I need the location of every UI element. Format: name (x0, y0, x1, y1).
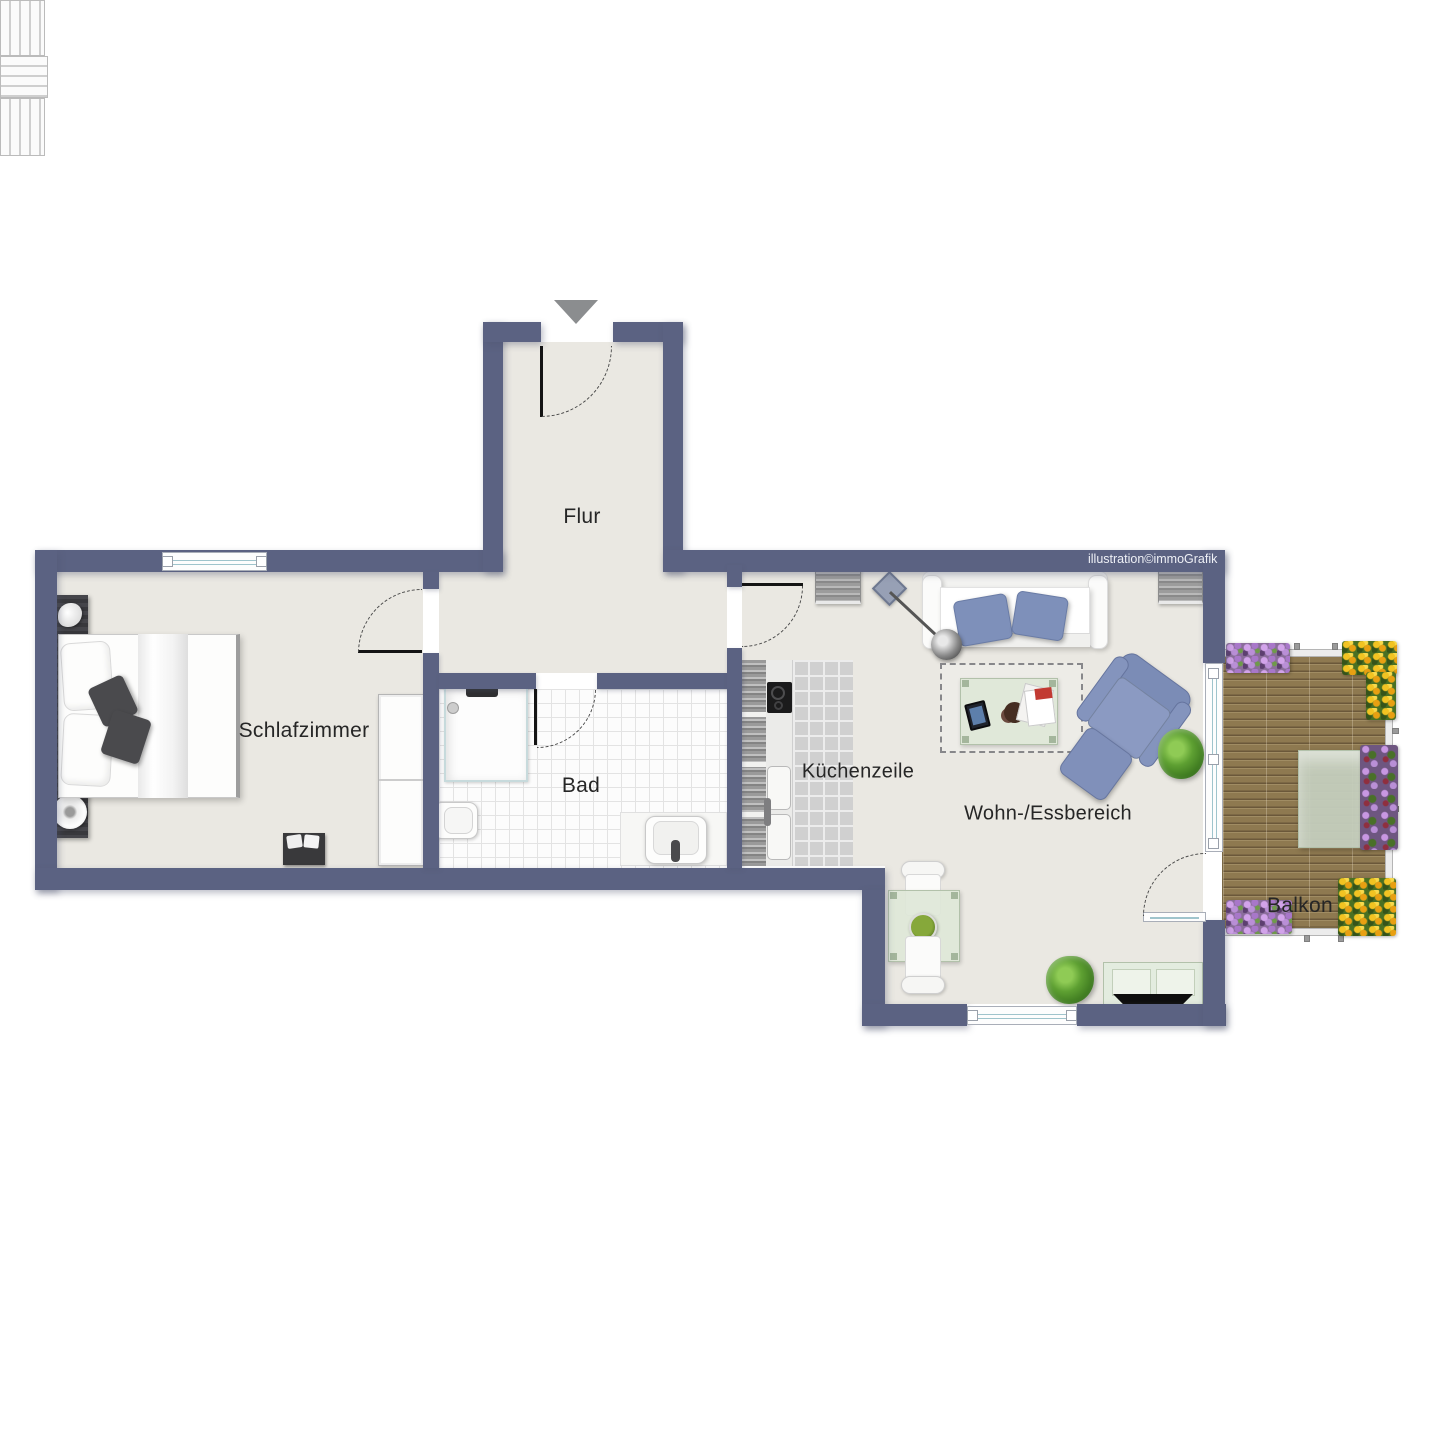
balcony-table (1298, 750, 1368, 848)
window-handle (1208, 838, 1219, 849)
wall-corridor-right (663, 322, 683, 572)
window-glass (977, 1014, 1067, 1019)
flower-box-top-right (1342, 641, 1397, 675)
bed-duvet-fold (138, 634, 188, 798)
flower-box-top-left (1226, 643, 1290, 673)
window-glass (1150, 917, 1199, 919)
window-handle (162, 556, 173, 567)
wall-top-left (35, 550, 503, 572)
flower-box-top-right-side (1366, 672, 1396, 720)
wall-hall-kitchen (727, 648, 742, 868)
sofa-cushion-blue (1011, 590, 1069, 642)
floor-lamp-base (931, 629, 962, 660)
kitchen-faucet-icon (764, 798, 771, 826)
wall-hall-kitchen-stub (727, 565, 742, 587)
window-glass (172, 560, 257, 565)
dining-chair-bottom (901, 976, 945, 994)
balcony-chair-top (0, 0, 45, 56)
hallway-lower-floor (439, 572, 727, 673)
dining-table-corner (890, 953, 897, 960)
watermark-text: illustration©immoGrafik (1088, 552, 1200, 566)
wall-bedroom-bath (423, 653, 439, 868)
wall-left (35, 550, 57, 890)
balcony-post (1304, 935, 1310, 942)
kitchen-cabinet-gap (742, 812, 766, 817)
balcony-post (1392, 728, 1399, 734)
flower-box-right (1360, 745, 1398, 850)
bedroom-window (162, 552, 267, 571)
toilet-seat (444, 807, 473, 834)
dining-table-corner (951, 953, 958, 960)
dining-window (967, 1006, 1077, 1025)
flower-box-bottom-right (1338, 878, 1396, 936)
room-label-flur: Flur (563, 505, 600, 529)
shower-drain-icon (447, 702, 459, 714)
lowboard-drawer (1112, 969, 1151, 996)
dining-table-corner (951, 892, 958, 899)
wall-bath-top-left (439, 673, 536, 689)
potted-plant-icon (1158, 729, 1204, 779)
magazine-cover-accent (1034, 687, 1052, 700)
washbasin-faucet-icon (671, 840, 680, 862)
wall-corridor-left (483, 322, 503, 572)
wall-bath-top-right (597, 673, 742, 689)
floor-plan-canvas: Flur Schlafzimmer Bad Küchenzeile Wohn-/… (0, 0, 1440, 1440)
room-label-bad: Bad (562, 774, 600, 798)
window-handle (1066, 1010, 1077, 1021)
wall-corridor-top-left (483, 322, 541, 342)
balcony-chair-left (0, 56, 48, 98)
room-label-kuechenzeile: Küchenzeile (802, 761, 914, 784)
dining-table-corner (890, 892, 897, 899)
wall-bedroom-door-stub (423, 572, 439, 589)
bench-cushion (286, 834, 303, 849)
wall-right-upper (1203, 550, 1225, 663)
shower (444, 686, 528, 782)
sofa-cushion-blue (952, 593, 1013, 648)
window-handle (1208, 754, 1219, 765)
balcony-post (1332, 643, 1338, 650)
dining-chair-bottom-seat (905, 936, 941, 980)
entrance-arrow-icon (554, 300, 598, 324)
bedside-table-round (53, 795, 87, 829)
sideboard-right (1158, 568, 1203, 604)
sofa-armrest (1088, 575, 1108, 649)
bench-cushion (303, 834, 319, 848)
kitchen-cabinet-gap (742, 712, 766, 717)
cooktop-burner-icon (774, 701, 783, 710)
coffee-table-corner (1049, 736, 1056, 743)
wall-right-lower (1203, 920, 1225, 1026)
balcony-chair-bottom (0, 98, 45, 156)
wall-dining-bottom-left (862, 1004, 967, 1026)
window-handle (1208, 668, 1219, 679)
coffee-table-corner (962, 680, 969, 687)
cooktop-burner-icon (771, 686, 785, 700)
sideboard-left (815, 568, 861, 604)
window-handle (967, 1010, 978, 1021)
balcony-post (1294, 643, 1300, 650)
room-label-schlafzimmer: Schlafzimmer (239, 719, 370, 743)
room-label-balkon: Balkon (1267, 894, 1333, 918)
wardrobe-divider (379, 779, 423, 781)
coffee-table-corner (962, 736, 969, 743)
kitchen-cabinet-gap (742, 762, 766, 767)
room-label-wohn-essbereich: Wohn-/Essbereich (964, 803, 1132, 826)
lowboard-drawer (1156, 969, 1195, 996)
balcony-post (1338, 935, 1344, 942)
wall-bottom-main (35, 868, 885, 890)
window-handle (256, 556, 267, 567)
coffee-table-corner (1049, 680, 1056, 687)
